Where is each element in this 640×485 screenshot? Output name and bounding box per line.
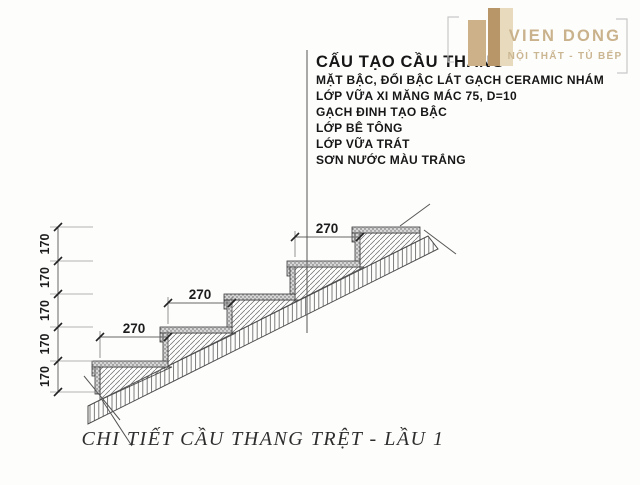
riser-dimension-label: 170	[38, 267, 52, 288]
riser-dimension-label: 170	[38, 366, 52, 387]
spec-line: SƠN NƯỚC MÀU TRẮNG	[316, 152, 466, 167]
spec-line: LỚP VỮA TRÁT	[316, 136, 410, 151]
drawing-caption: CHI TIẾT CẦU THANG TRỆT - LẦU 1	[81, 426, 444, 450]
logo-building-icon	[468, 8, 513, 66]
spec-line: LỚP VỮA XI MĂNG MÁC 75, D=10	[316, 88, 517, 103]
tread-dimension-label: 270	[123, 321, 146, 336]
tread-dimension-label: 270	[189, 287, 212, 302]
riser-dimension-label: 170	[38, 334, 52, 355]
riser-dimension-label: 170	[38, 234, 52, 255]
tread-dimension-label: 270	[316, 221, 339, 236]
step-brick-triangles	[100, 233, 420, 400]
riser-dimension-chain: 170 170 170 170 170	[38, 223, 98, 396]
spec-line: LỚP BÊ TÔNG	[316, 120, 403, 135]
spec-line: GẠCH ĐINH TẠO BẬC	[316, 104, 447, 119]
spec-line: MẶT BẬC, ĐỐI BẬC LÁT GẠCH CERAMIC NHÁM	[316, 72, 604, 87]
logo: VIEN DONG NỘI THẤT - TỦ BẾP	[448, 8, 627, 73]
logo-tagline: NỘI THẤT - TỦ BẾP	[508, 49, 623, 62]
break-mark-top-right-icon	[400, 204, 430, 226]
logo-name: VIEN DONG	[509, 27, 621, 45]
spec-block: CẤU TẠO CẦU THANG MẶT BẬC, ĐỐI BẬC LÁT G…	[316, 52, 604, 167]
drawing-sheet: 170 170 170 170 170	[0, 0, 640, 480]
riser-dimension-label: 170	[38, 300, 52, 321]
stair-detail-drawing: 170 170 170 170 170	[0, 0, 640, 480]
